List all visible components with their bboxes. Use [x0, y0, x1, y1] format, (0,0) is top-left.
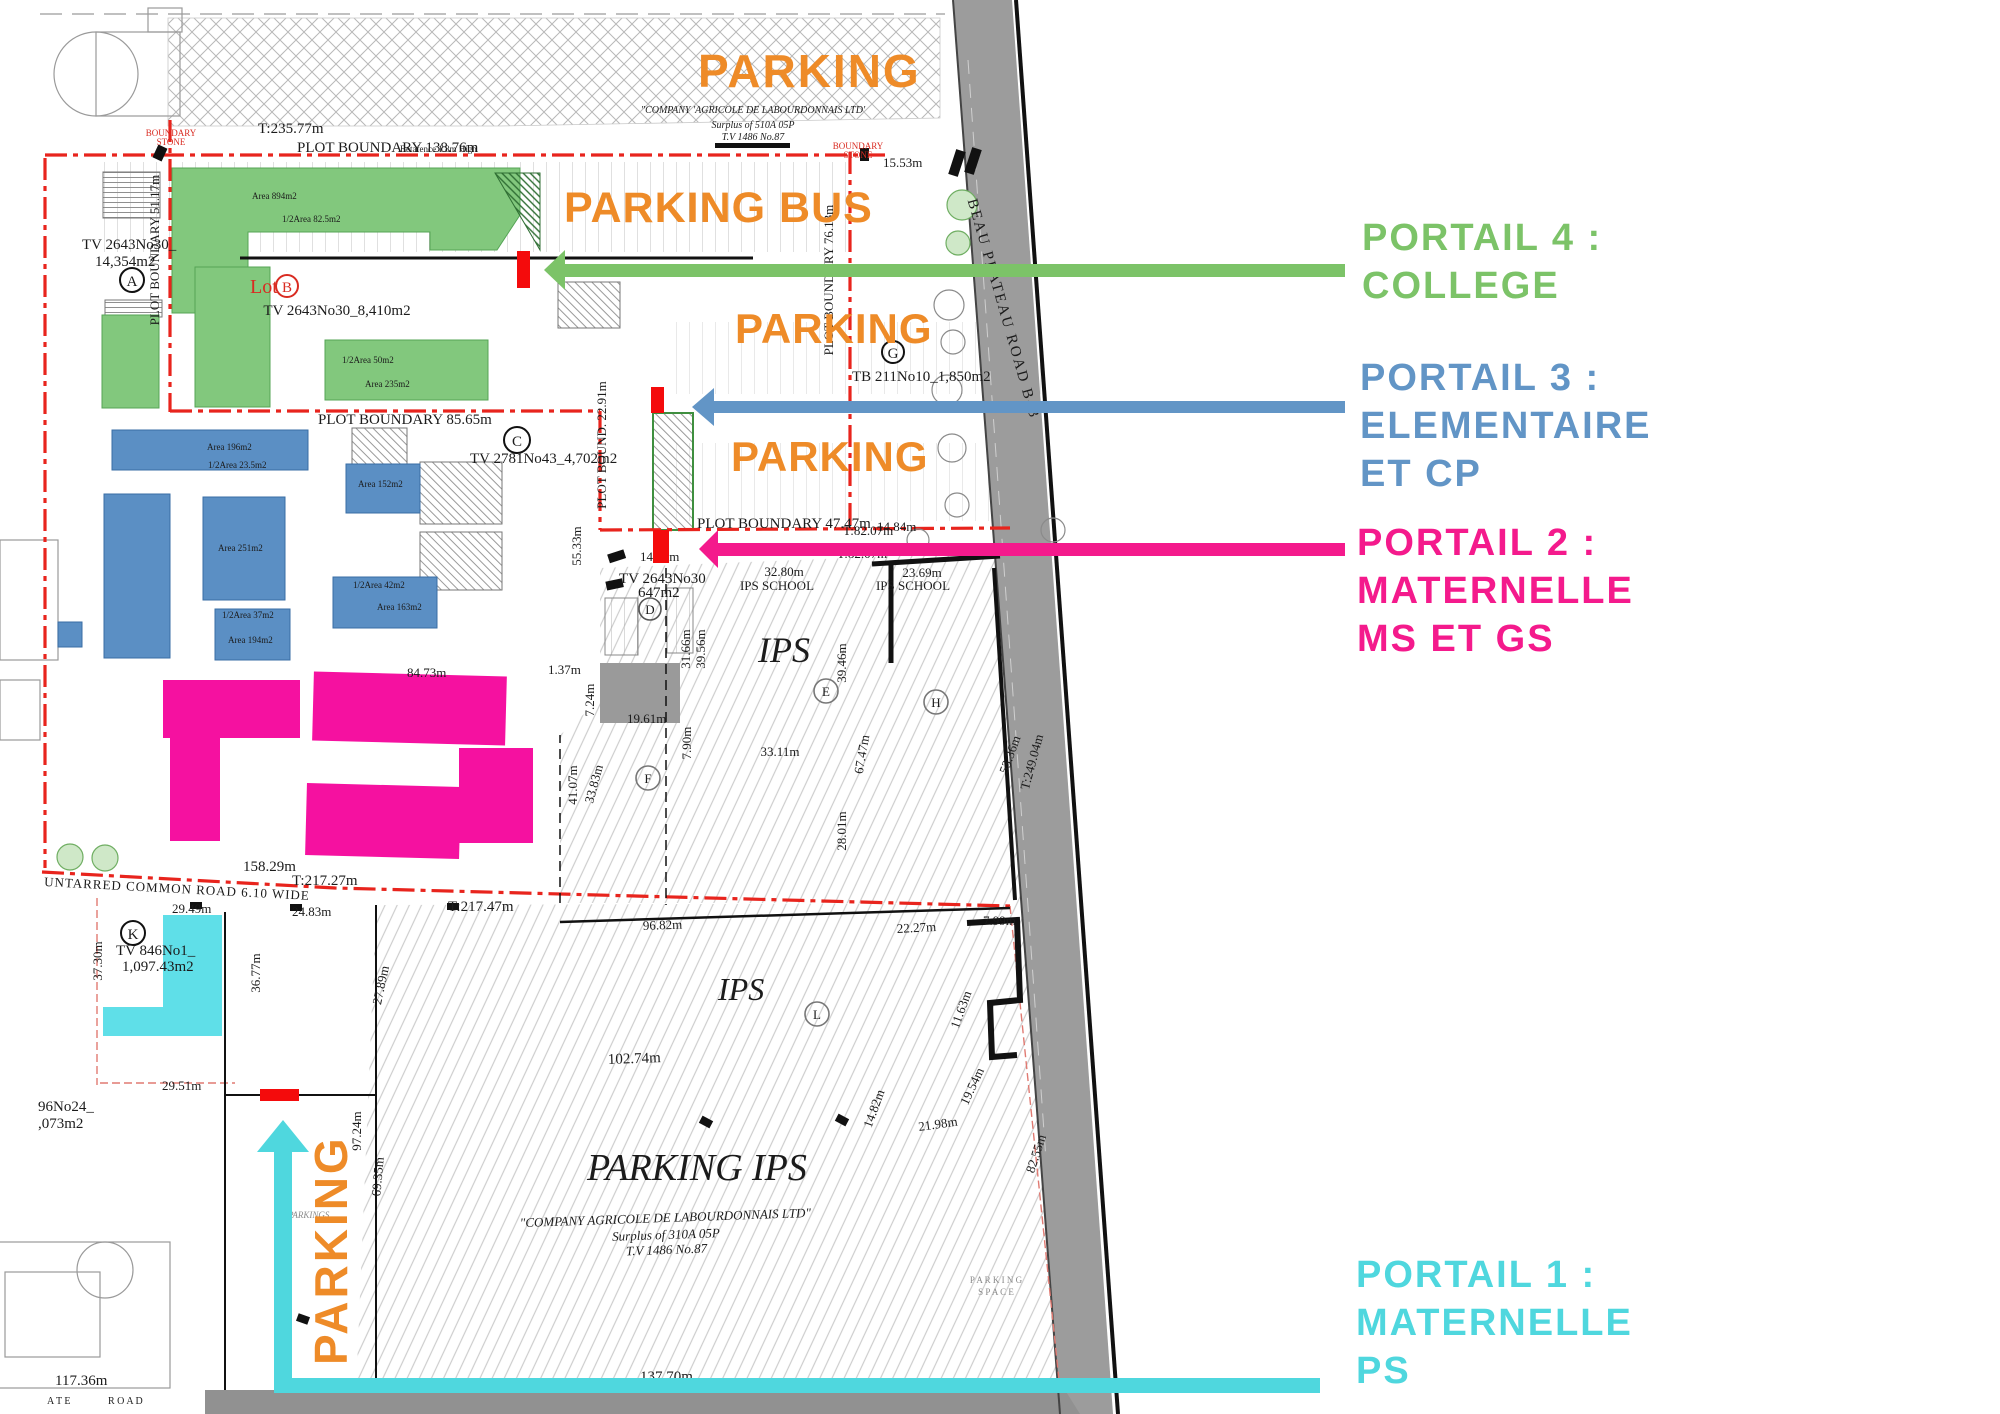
measure-3730: 37.30m	[90, 941, 105, 980]
parcel-tb211: TB 211No10_1,850m2	[852, 369, 991, 385]
zone-d: D	[645, 602, 654, 617]
bottom-road	[205, 1390, 1080, 1414]
measure-4107: 41.07m	[565, 765, 580, 804]
zone-l: L	[813, 1007, 821, 1022]
measure-t235: T:235.77m	[258, 121, 324, 137]
ips-label-lower: IPS	[717, 971, 764, 1007]
portal-4-label: PORTAIL 4 : COLLEGE	[1362, 214, 1602, 310]
gate-4-marker	[517, 251, 530, 288]
half-area-42: 1/2Area 42m2	[353, 580, 405, 590]
measure-799: 7.99m	[983, 913, 1016, 928]
portal-2-line3: MS ET GS	[1357, 615, 1634, 663]
company-bottom-line3: T.V 1486 No.87	[626, 1241, 708, 1259]
area-251: Area 251m2	[218, 543, 263, 553]
measure-3311: 33.11m	[761, 744, 800, 759]
betafence-note: Betafence 1.8m High	[400, 144, 477, 154]
parcel-tv2643-8410: TV 2643No30_8,410m2	[263, 303, 410, 319]
portal-4-line1: PORTAIL 4 :	[1362, 214, 1602, 262]
area-894: Area 894m2	[252, 191, 297, 201]
road-word-label: R O A D	[108, 1396, 143, 1407]
area-235: Area 235m2	[365, 379, 410, 389]
ips-label-upper: IPS	[757, 630, 810, 670]
measure-3166: 31.66m	[678, 629, 693, 668]
lot-b-label: Lot	[250, 276, 278, 298]
portal-1-line3: PS	[1356, 1347, 1633, 1395]
portal-4-arrow	[544, 250, 1345, 290]
parcel-tv2643-14354-l1: TV 2643No30_	[82, 237, 177, 253]
measure-3956: 39.56m	[693, 629, 708, 668]
parking-label-middle-2: PARKING	[731, 433, 929, 481]
plan-drawing: A C D E F G H K L T:235.77m "COMPANY 'AG…	[0, 0, 2000, 1414]
company-top-line1: "COMPANY 'AGRICOLE DE LABOURDONNAIS LTD'	[641, 105, 866, 116]
measure-8473: 84.73m	[407, 665, 446, 680]
measure-2227: 22.27m	[896, 919, 936, 936]
measure-10274: 102.74m	[608, 1050, 662, 1068]
ips-school-1: IPS SCHOOL	[740, 578, 814, 593]
zone-c: C	[512, 434, 522, 450]
gate-1-marker	[260, 1089, 299, 1101]
measure-790: 7.90m	[679, 727, 694, 760]
measure-1553: 15.53m	[883, 155, 922, 170]
zone-e: E	[822, 684, 830, 699]
measure-11736: 117.36m	[55, 1373, 108, 1389]
measure-2801: 28.01m	[834, 811, 849, 850]
measure-1961: 19.61m	[627, 711, 666, 726]
boundary-stone-1b: STONE	[157, 137, 186, 147]
measure-724: 7.24m	[582, 684, 597, 717]
parcel-tv296-l2: ,073m2	[38, 1116, 83, 1132]
parcel-tv846-l1: TV 846No1_	[116, 943, 196, 959]
gate-2-marker	[653, 530, 669, 563]
portal-3-line3: ET CP	[1360, 450, 1652, 498]
portal-1-line1: PORTAIL 1 :	[1356, 1251, 1633, 1299]
parking-ips-label: PARKING IPS	[586, 1147, 807, 1189]
parking-bus-label: PARKING BUS	[564, 184, 873, 233]
portal-3-label: PORTAIL 3 : ELEMENTAIRE ET CP	[1360, 354, 1652, 498]
measure-t21747: T:217.47m	[448, 899, 514, 915]
measure-15829: 158.29m	[243, 859, 296, 875]
parking-label-vertical: PARKING	[304, 1137, 352, 1365]
measure-3946: 39.46m	[834, 643, 849, 682]
plot-boundary-8565: PLOT BOUNDARY 85.65m	[318, 412, 492, 428]
gate-3-marker	[651, 387, 664, 413]
plot-boundary-51: PLOT BOUNDARY 51.17m	[147, 175, 162, 326]
portal-3-line1: PORTAIL 3 :	[1360, 354, 1652, 402]
half-area-50: 1/2Area 50m2	[342, 355, 394, 365]
portal-1-line2: MATERNELLE	[1356, 1299, 1633, 1347]
zone-h: H	[931, 695, 940, 710]
measure-3677: 36.77m	[248, 953, 263, 992]
portal-2-line1: PORTAIL 2 :	[1357, 519, 1634, 567]
parking-space-l2: S P A C E	[978, 1287, 1014, 1297]
measure-2951: 29.51m	[162, 1078, 201, 1093]
parking-space-l1: P A R K I N G	[970, 1275, 1023, 1285]
measure-9682: 96.82m	[643, 917, 683, 933]
parking-label-top: PARKING	[698, 44, 921, 98]
measure-1484: 14.84m	[877, 519, 916, 534]
road-ate-label: A T E	[47, 1396, 71, 1407]
company-top-line3: T.V 1486 No.87	[722, 132, 785, 143]
zone-f: F	[644, 771, 651, 786]
maternelle-buildings-magenta	[163, 671, 533, 859]
portal-3-line2: ELEMENTAIRE	[1360, 402, 1652, 450]
measure-5533: 55.33m	[569, 526, 584, 565]
zone-k: K	[128, 927, 139, 943]
parcel-tv2643-647-l2: 647m2	[638, 585, 680, 601]
parcel-tv296-l1: 96No24_	[38, 1099, 94, 1115]
parcel-tv846-l2: 1,097.43m2	[122, 959, 194, 975]
measure-2483: 24.83m	[292, 904, 331, 919]
portal-2-line2: MATERNELLE	[1357, 567, 1634, 615]
parking-label-middle-1: PARKING	[735, 305, 933, 353]
company-top-line2: Surplus of 510A 05P	[712, 120, 795, 131]
area-163: Area 163m2	[377, 602, 422, 612]
area-196: Area 196m2	[207, 442, 252, 452]
green-outline-building	[653, 413, 693, 530]
area-194: Area 194m2	[228, 635, 273, 645]
portal-1-label: PORTAIL 1 : MATERNELLE PS	[1356, 1251, 1633, 1395]
lot-b-letter: B	[282, 280, 292, 296]
measure-2949: 29.49m	[172, 901, 211, 916]
area-152: Area 152m2	[358, 479, 403, 489]
measure-3280: 32.80m	[764, 564, 803, 579]
portal-2-label: PORTAIL 2 : MATERNELLE MS ET GS	[1357, 519, 1634, 663]
half-area-825: 1/2Area 82.5m2	[282, 214, 341, 224]
plot-bound-2291: PLOT BOUND. 22.91m	[594, 381, 609, 509]
site-plan: A C D E F G H K L T:235.77m "COMPANY 'AG…	[0, 0, 2000, 1414]
half-area-235: 1/2Area 23.5m2	[208, 460, 267, 470]
portal-4-line2: COLLEGE	[1362, 262, 1602, 310]
half-area-37: 1/2Area 37m2	[222, 610, 274, 620]
boundary-stone-2b: STONE	[844, 150, 873, 160]
zone-a: A	[127, 274, 138, 290]
measure-137: 1.37m	[548, 662, 581, 677]
ips-school-2: IPS SCHOOL	[876, 578, 950, 593]
